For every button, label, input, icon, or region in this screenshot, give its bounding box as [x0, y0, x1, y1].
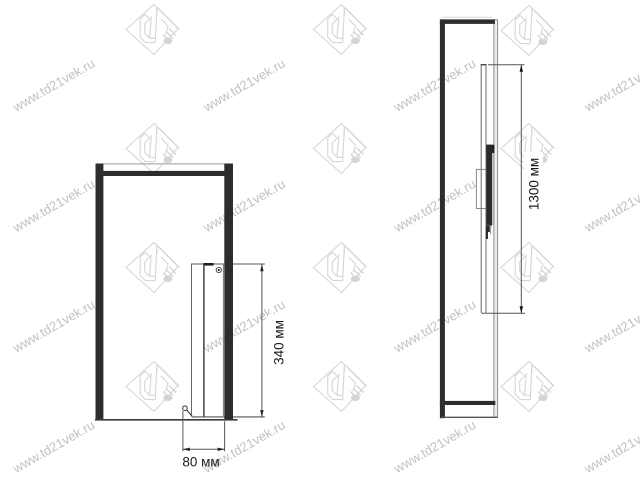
svg-text:80 мм: 80 мм [182, 455, 219, 470]
svg-text:1300 мм: 1300 мм [527, 158, 542, 210]
svg-text:340 мм: 340 мм [272, 320, 287, 365]
